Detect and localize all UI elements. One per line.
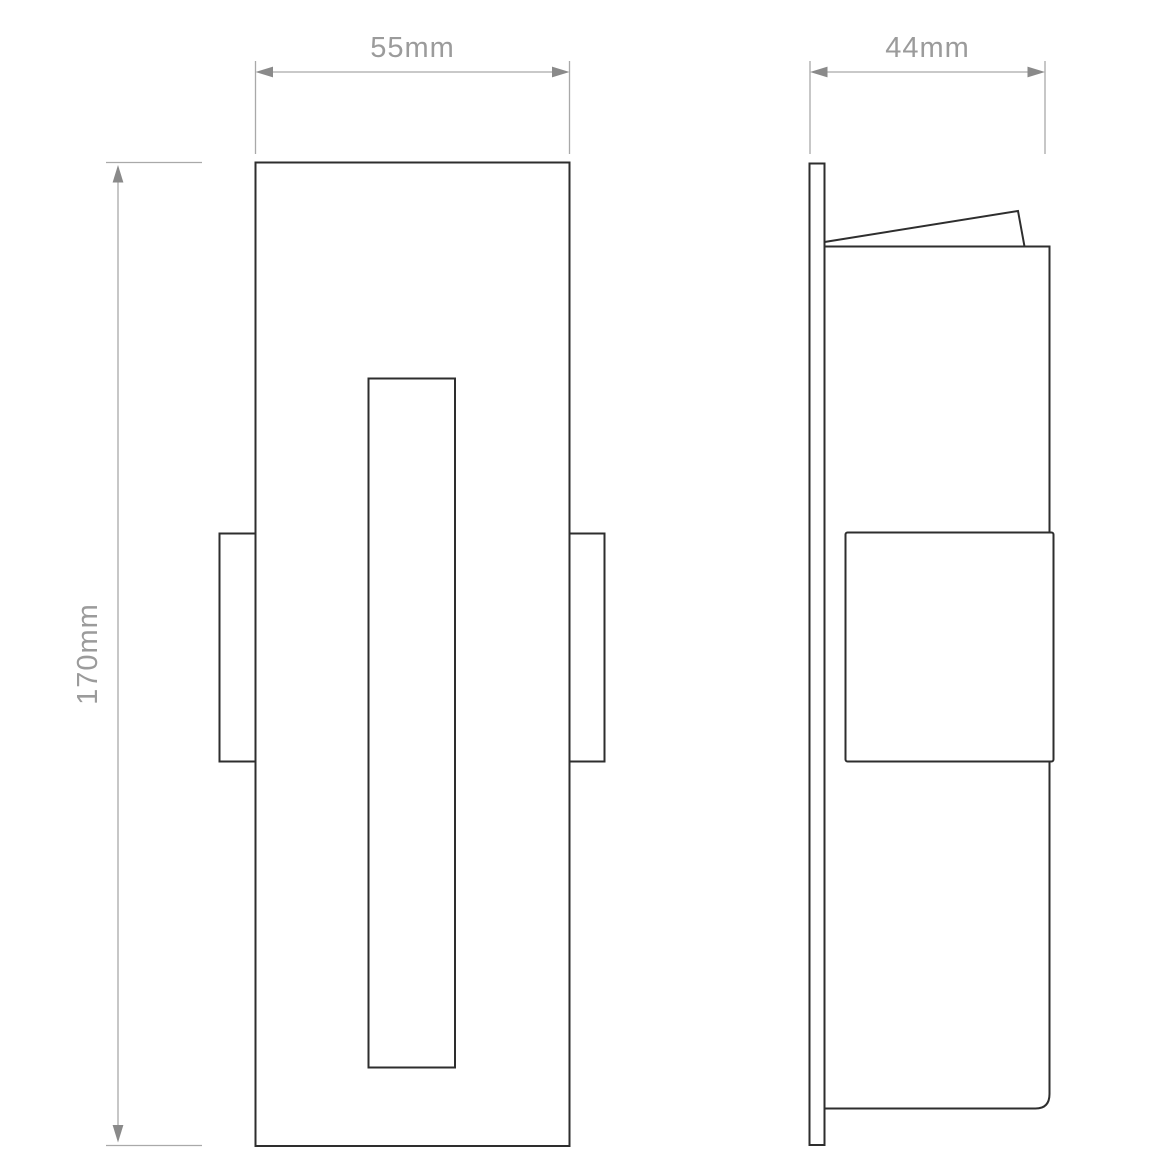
arrow-left-icon — [810, 67, 828, 78]
arrow-left-icon — [256, 67, 274, 78]
side-view — [810, 164, 1054, 1146]
dimension-depth-label: 44mm — [885, 32, 970, 64]
arrow-down-icon — [113, 1125, 124, 1143]
front-view-light-slot — [369, 379, 456, 1068]
arrow-right-icon — [552, 67, 570, 78]
arrow-up-icon — [113, 165, 124, 183]
technical-drawing: 55mm 44mm 170mm — [0, 0, 1170, 1170]
side-view-recess-box — [846, 533, 1054, 762]
front-view — [220, 163, 605, 1147]
front-view-left-tab — [220, 534, 256, 762]
side-view-hinged-lid — [825, 211, 1025, 247]
dimension-width-label: 55mm — [370, 32, 455, 64]
dimension-depth: 44mm — [810, 32, 1045, 154]
dimension-height: 170mm — [72, 163, 202, 1146]
side-view-wall-plate — [810, 164, 825, 1146]
arrow-right-icon — [1028, 67, 1046, 78]
drawing-canvas: 55mm 44mm 170mm — [0, 0, 1170, 1170]
dimension-height-label: 170mm — [72, 603, 104, 705]
front-view-right-tab — [570, 534, 605, 762]
dimension-width: 55mm — [256, 32, 570, 154]
